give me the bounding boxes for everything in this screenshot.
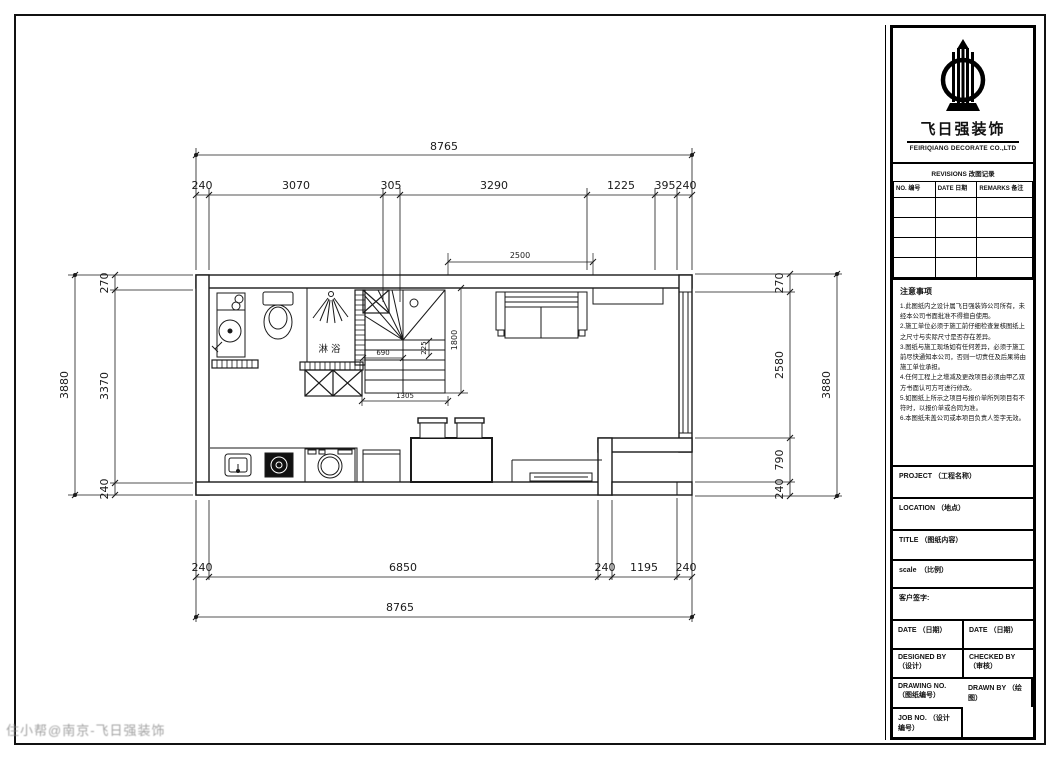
revisions-row bbox=[894, 198, 1033, 218]
dim-top-1: 3070 bbox=[282, 179, 310, 192]
field-checked-by: CHECKED BY （审核） bbox=[962, 650, 1033, 677]
dim-right-overall: 3880 bbox=[820, 371, 833, 399]
kitchen bbox=[210, 448, 400, 482]
washing-machine bbox=[305, 449, 355, 482]
dim-bottom-4: 240 bbox=[676, 561, 697, 574]
dim-top-4: 1225 bbox=[607, 179, 635, 192]
revisions-cell bbox=[894, 198, 936, 218]
field-scale: scale （比例） bbox=[893, 559, 1033, 587]
field-title: TITLE （图纸内容） bbox=[893, 529, 1033, 559]
dim-left bbox=[68, 272, 193, 498]
entry-recess bbox=[512, 460, 602, 482]
company-logo-section: 飞日强装饰 FEIRIQIANG DECORATE CO.,LTD bbox=[893, 28, 1033, 162]
drawing-sheet: 淋浴 bbox=[0, 0, 1063, 761]
revisions-col-date: DATE 日期 bbox=[935, 182, 977, 198]
revisions-cell bbox=[977, 218, 1033, 238]
revisions-cell bbox=[894, 218, 936, 238]
revisions-cell bbox=[894, 258, 936, 278]
company-name-cn: 飞日强装饰 bbox=[920, 118, 1005, 139]
dim-right-3: 240 bbox=[773, 479, 786, 500]
dim-left-2: 240 bbox=[98, 479, 111, 500]
revisions-col-no: NO. 编号 bbox=[894, 182, 936, 198]
sofa bbox=[496, 292, 587, 338]
field-designed-by: DESIGNED BY （设计） bbox=[893, 650, 962, 677]
revisions-cell bbox=[935, 218, 977, 238]
revisions-cell bbox=[935, 258, 977, 278]
dim-left-0: 270 bbox=[98, 273, 111, 294]
notes-title: 注意事项 bbox=[900, 286, 1026, 297]
revisions-section: REVISIONS 改图记录 NO. 编号 DATE 日期 REMARKS 备注 bbox=[893, 162, 1033, 278]
field-drawing-no: DRAWING NO. （图纸编号） bbox=[893, 679, 963, 707]
logo-divider-bar bbox=[907, 141, 1019, 144]
revisions-row bbox=[894, 238, 1033, 258]
field-designed-row: DESIGNED BY （设计） CHECKED BY （审核） bbox=[893, 648, 1033, 677]
dim-top-5: 395 bbox=[655, 179, 676, 192]
field-project: PROJECT （工程名称） bbox=[893, 465, 1033, 497]
revisions-col-remarks: REMARKS 备注 bbox=[977, 182, 1033, 198]
field-drawn-by: DRAWN BY （绘图） bbox=[963, 679, 1033, 707]
kitchen-sink bbox=[225, 454, 251, 476]
note-line: 1.此图纸内之设计属飞日强装饰公司所有，未经本公司书面批准不得擅自使用。 bbox=[900, 302, 1026, 322]
company-name-en: FEIRIQIANG DECORATE CO.,LTD bbox=[910, 145, 1017, 152]
dim-top-3: 3290 bbox=[480, 179, 508, 192]
dim-left-overall: 3880 bbox=[58, 371, 71, 399]
title-block-outer-line bbox=[885, 25, 886, 740]
dim-bottom-2: 240 bbox=[595, 561, 616, 574]
dim-stair-tread: 690 bbox=[376, 349, 389, 357]
field-client-sign: 客户签字: bbox=[893, 587, 1033, 619]
wall-details bbox=[512, 288, 677, 495]
field-dates-row: DATE （日期） DATE （日期） bbox=[893, 619, 1033, 648]
vanity-sink bbox=[212, 293, 245, 357]
dim-stair-width: 2500 bbox=[510, 251, 530, 260]
title-block: 飞日强装饰 FEIRIQIANG DECORATE CO.,LTD REVISI… bbox=[890, 25, 1036, 740]
dim-top-6: 240 bbox=[676, 179, 697, 192]
revisions-row bbox=[894, 218, 1033, 238]
dim-top-0: 240 bbox=[192, 179, 213, 192]
field-date-left: DATE （日期） bbox=[893, 621, 962, 648]
watermark-text: 住小帮@南京-飞日强装饰 bbox=[6, 720, 166, 739]
field-location: LOCATION （地点） bbox=[893, 497, 1033, 529]
dim-top-2: 305 bbox=[381, 179, 402, 192]
note-line: 4.任何工程上之增减及更改项目必须由甲乙双方书面认可方可进行修改。 bbox=[900, 373, 1026, 393]
note-line: 6.本图纸未盖公司或本项目负责人签字无效。 bbox=[900, 414, 1026, 424]
revisions-cell bbox=[935, 238, 977, 258]
field-bottom-grid: DRAWN BY （绘图） DRAWING NO. （图纸编号） JOB NO.… bbox=[893, 677, 1033, 737]
dim-right-1: 2580 bbox=[773, 351, 786, 379]
notes-section: 注意事项 1.此图纸内之设计属飞日强装饰公司所有，未经本公司书面批准不得擅自使用… bbox=[893, 278, 1033, 465]
dim-bottom-0: 240 bbox=[192, 561, 213, 574]
dim-bottom-overall: 8765 bbox=[386, 601, 414, 614]
revisions-cell bbox=[977, 258, 1033, 278]
toilet bbox=[263, 292, 293, 339]
dim-right-0: 270 bbox=[773, 273, 786, 294]
cooktop bbox=[265, 453, 293, 477]
field-job-no: JOB NO. （设计编号） bbox=[893, 707, 963, 737]
field-date-right: DATE （日期） bbox=[962, 621, 1033, 648]
dim-right-2: 790 bbox=[773, 450, 786, 471]
shower-label: 淋浴 bbox=[318, 343, 343, 355]
note-line: 2.施工单位必须于施工前仔细检查复核图纸上之尺寸与实际尺寸是否存在差异。 bbox=[900, 322, 1026, 342]
revisions-row bbox=[894, 258, 1033, 278]
base-cabinet bbox=[363, 450, 400, 482]
dim-top-overall: 8765 bbox=[430, 140, 458, 153]
dim-left-1: 3370 bbox=[98, 372, 111, 400]
note-line: 3.图纸与施工现场如有任何差异，必须于施工前尽快通知本公司，否则一切责任及后果将… bbox=[900, 343, 1026, 374]
revisions-table: NO. 编号 DATE 日期 REMARKS 备注 bbox=[893, 181, 1033, 278]
staircase bbox=[365, 290, 445, 393]
dining-set bbox=[411, 418, 492, 482]
top-wall-niche bbox=[593, 288, 663, 304]
revisions-cell bbox=[977, 198, 1033, 218]
revisions-cell bbox=[894, 238, 936, 258]
dim-bottom-1: 6850 bbox=[389, 561, 417, 574]
revisions-cell bbox=[935, 198, 977, 218]
dim-stair-run: 1305 bbox=[396, 392, 414, 400]
dim-stair-depth: 1800 bbox=[450, 330, 459, 350]
dim-bottom-3: 1195 bbox=[630, 561, 658, 574]
revisions-cell bbox=[977, 238, 1033, 258]
note-line: 5.如图纸上所示之项目与报价单所列项目有不符时，以报价单或合同为准。 bbox=[900, 394, 1026, 414]
dim-stair-riser: 225 bbox=[420, 341, 428, 354]
revisions-title: REVISIONS 改图记录 bbox=[893, 164, 1033, 181]
company-logo-icon bbox=[932, 38, 994, 116]
